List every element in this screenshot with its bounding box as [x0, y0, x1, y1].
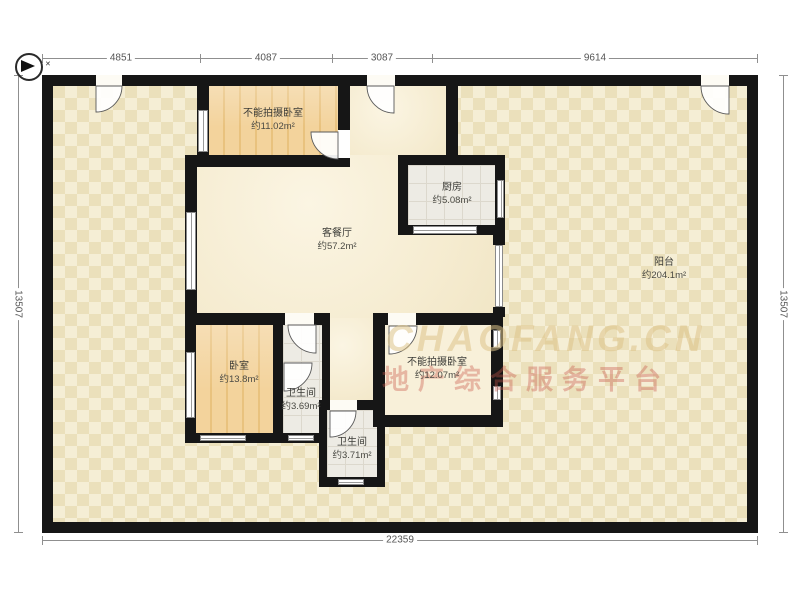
dim-top-2: 4087	[252, 53, 280, 64]
floorplan-page: { "compass": {"mark": "✕"}, "dimensions"…	[0, 0, 800, 600]
kitchen-window-right	[497, 180, 504, 218]
dim-top-1: 4851	[107, 53, 135, 64]
hall-wall-right	[446, 86, 458, 158]
bedroom-top-label: 不能拍摄卧室约11.02m²	[243, 107, 303, 133]
dim-left: 13507	[13, 288, 24, 320]
bedroom-left-wall-right	[273, 313, 283, 443]
bedroom-left-label: 卧室约13.8m²	[219, 360, 258, 386]
bath-lower-label: 卫生间约3.71m²	[332, 436, 371, 462]
watermark-brand: CHAOFANG.CN	[386, 318, 705, 360]
outer-wall-left	[42, 75, 53, 533]
living-room-label: 客餐厅约57.2m²	[317, 227, 356, 253]
bedroom-top-window	[198, 110, 208, 152]
balcony-label: 阳台约204.1m²	[642, 256, 686, 282]
bedroom-right-wall-bottom	[373, 415, 503, 427]
bath-upper-label: 卫生间约3.69m²	[281, 387, 320, 413]
bedroom-left-window-bottom	[200, 435, 246, 441]
kitchen-sliding-door	[413, 226, 477, 234]
outer-wall-top	[42, 75, 758, 86]
dim-top-3: 3087	[368, 53, 396, 64]
dim-line-top	[42, 58, 758, 59]
living-right-wall-stub-top	[493, 235, 505, 245]
bedroom-left-wall-top	[185, 313, 283, 325]
kitchen-wall-top	[398, 155, 505, 165]
entry-hall-floor	[345, 86, 450, 160]
compass-icon	[15, 53, 43, 81]
bedroom-top-wall-bottom	[185, 155, 350, 167]
compass-north-mark: ✕	[45, 60, 51, 68]
terrace-door-opening-right	[701, 75, 729, 86]
bedroom-right-label: 不能拍摄卧室约12.07m²	[407, 356, 467, 382]
living-right-window	[495, 245, 503, 307]
outer-wall-right	[747, 75, 758, 533]
kitchen-label: 厨房约5.08m²	[432, 181, 471, 207]
outer-wall-bottom	[42, 522, 758, 533]
floorplan-canvas: CHAOFANG.CN 地产综合服务平台 不能拍摄卧室约11.02m² 客餐厅约…	[0, 0, 800, 600]
bath-lower-window-bottom	[338, 479, 364, 485]
living-window-left	[186, 212, 196, 290]
bath-lower-door-opening	[330, 400, 357, 410]
dim-bottom: 22359	[383, 535, 417, 546]
bath-upper-window-bottom	[288, 435, 314, 441]
bath-upper-door-opening	[285, 313, 314, 325]
kitchen-wall-left	[398, 155, 408, 235]
bath-upper-floor	[283, 325, 322, 433]
dim-top-4: 9614	[581, 53, 609, 64]
bedroom-top-door-opening	[338, 130, 350, 158]
bedroom-left-window-left	[186, 352, 195, 418]
dim-right: 13507	[778, 288, 789, 320]
terrace-door-opening-left	[96, 75, 122, 86]
entry-door-opening	[367, 75, 395, 86]
